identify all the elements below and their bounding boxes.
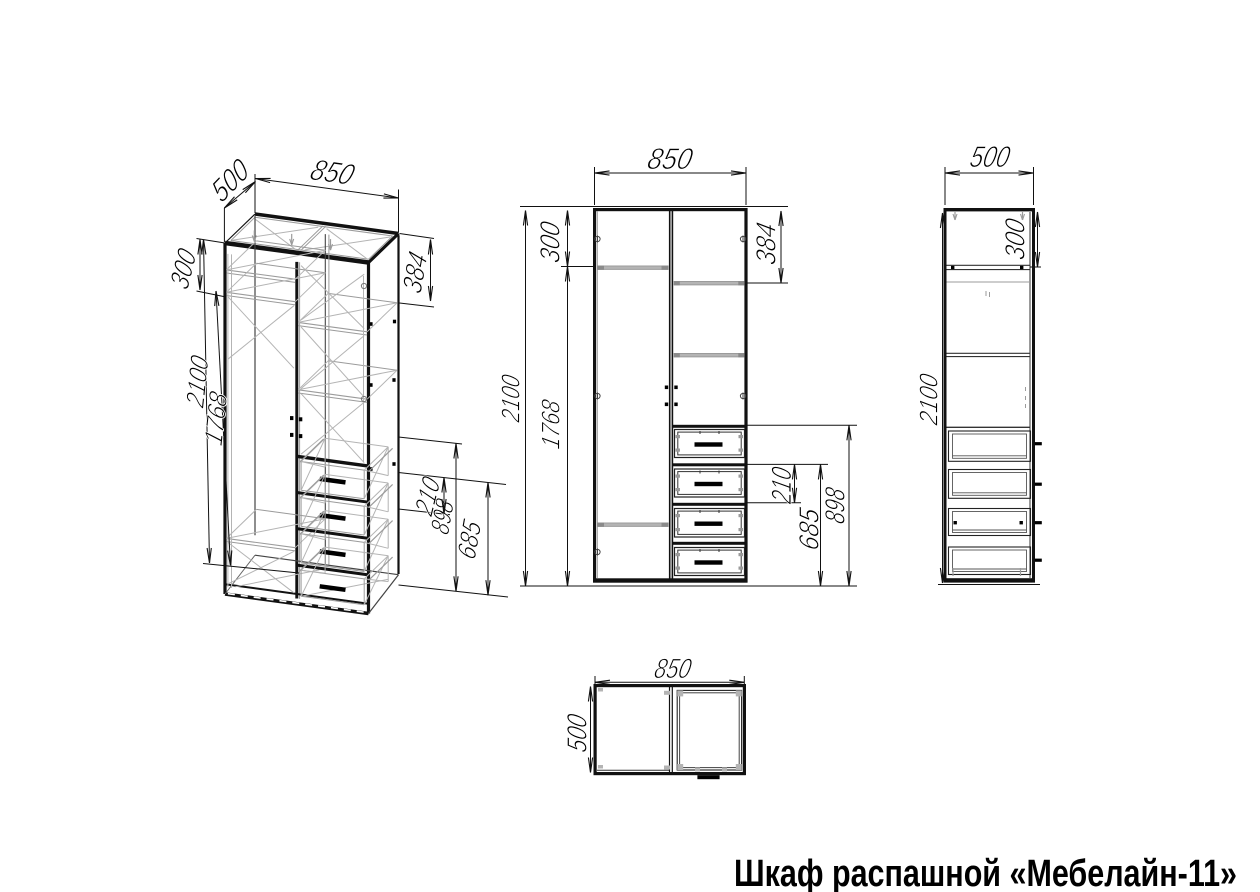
svg-text:2100: 2100: [914, 371, 944, 428]
svg-text:685: 685: [793, 505, 825, 553]
svg-text:384: 384: [750, 220, 782, 268]
svg-text:Шкаф распашной «Мебелайн-11»: Шкаф распашной «Мебелайн-11»: [734, 853, 1237, 892]
svg-text:500: 500: [561, 711, 593, 755]
svg-text:2100: 2100: [496, 372, 526, 425]
svg-text:300: 300: [999, 215, 1031, 262]
svg-text:1768: 1768: [536, 397, 566, 452]
svg-text:500: 500: [967, 141, 1013, 174]
svg-text:850: 850: [645, 143, 696, 176]
svg-text:1768: 1768: [199, 387, 233, 448]
svg-text:300: 300: [534, 218, 566, 265]
svg-text:210: 210: [765, 464, 797, 507]
svg-text:850: 850: [652, 652, 695, 684]
